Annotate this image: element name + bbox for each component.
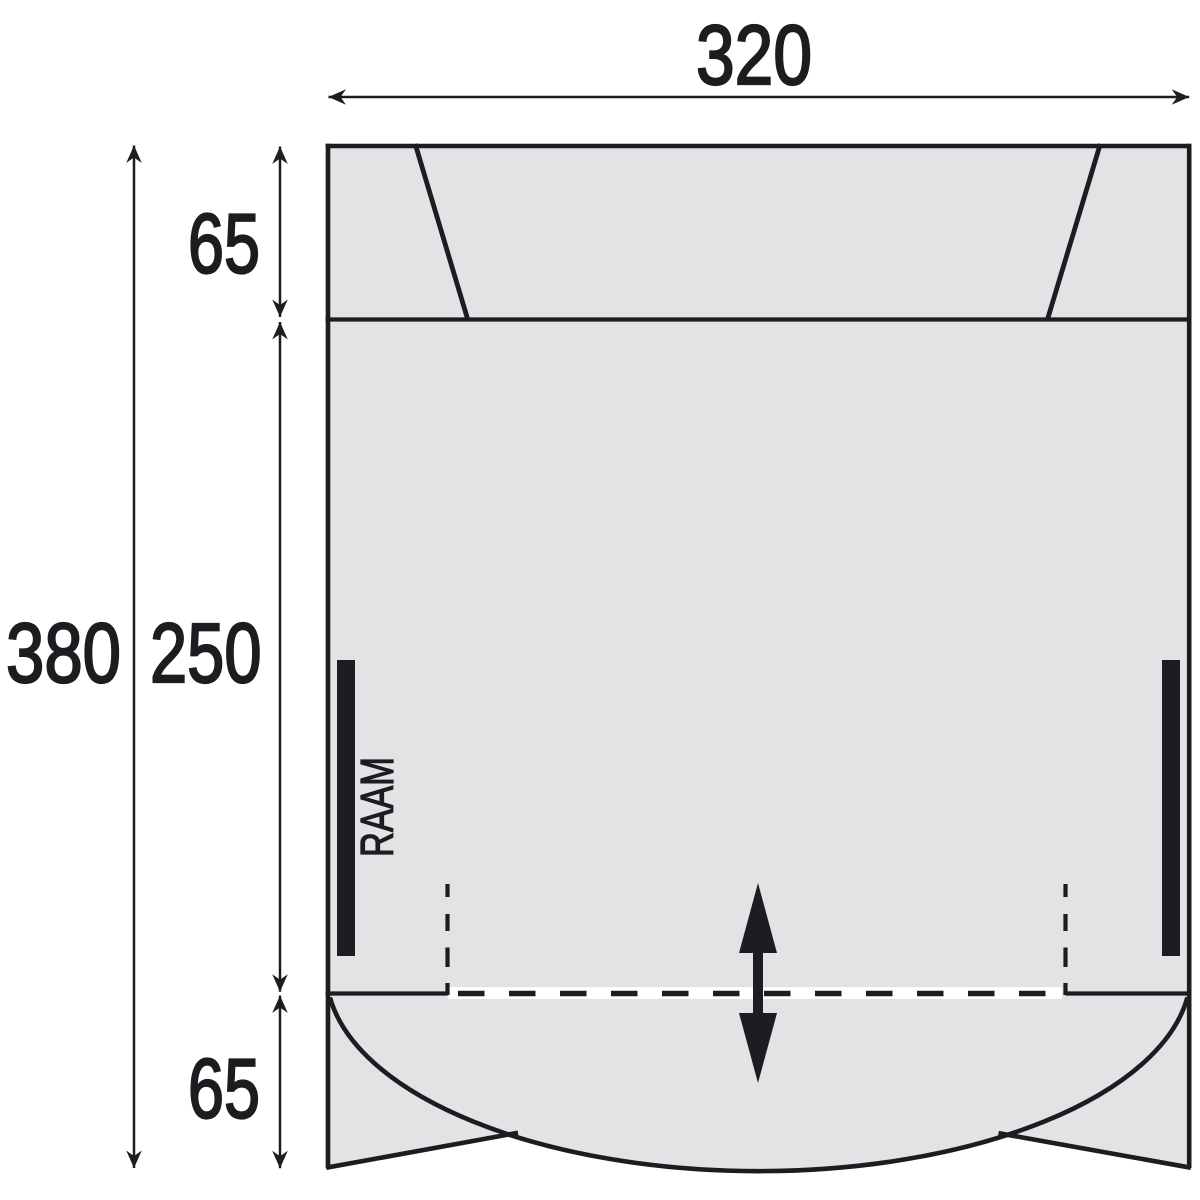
svg-text:RAAM: RAAM bbox=[351, 757, 403, 857]
svg-text:65: 65 bbox=[188, 1042, 260, 1136]
svg-text:320: 320 bbox=[696, 8, 812, 102]
svg-text:250: 250 bbox=[150, 606, 262, 700]
svg-text:380: 380 bbox=[6, 606, 121, 700]
svg-text:65: 65 bbox=[188, 197, 260, 291]
